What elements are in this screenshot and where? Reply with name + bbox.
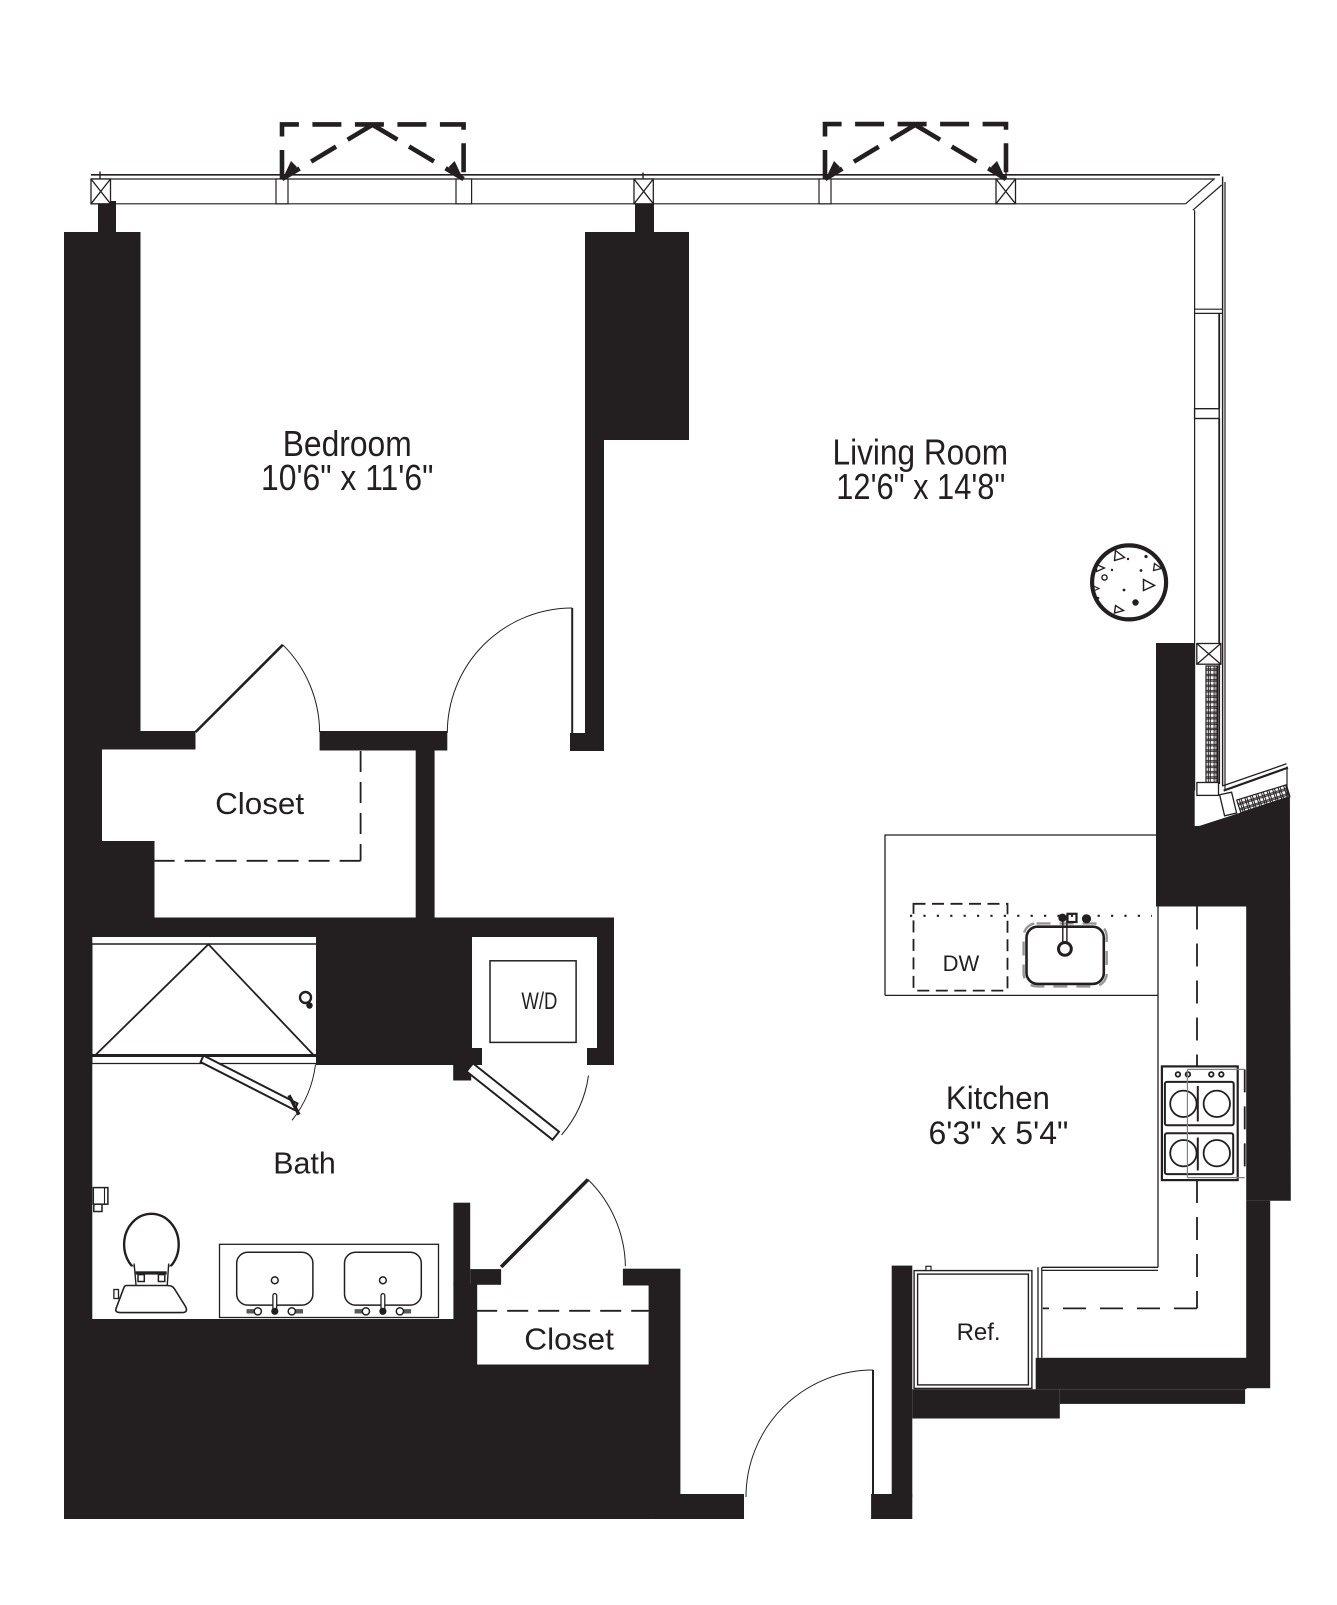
svg-text:12'6" x 14'8": 12'6" x 14'8" (836, 466, 1005, 507)
svg-text:6'3" x 5'4": 6'3" x 5'4" (928, 1115, 1068, 1151)
svg-text:10'6" x 11'6": 10'6" x 11'6" (261, 457, 433, 498)
svg-text:Kitchen: Kitchen (946, 1080, 1050, 1116)
svg-text:DW: DW (943, 951, 980, 976)
svg-text:Closet: Closet (215, 786, 304, 821)
svg-text:Closet: Closet (524, 1321, 614, 1356)
svg-text:Bath: Bath (273, 1146, 336, 1181)
svg-text:W/D: W/D (521, 988, 557, 1015)
svg-text:Ref.: Ref. (957, 1319, 1001, 1346)
